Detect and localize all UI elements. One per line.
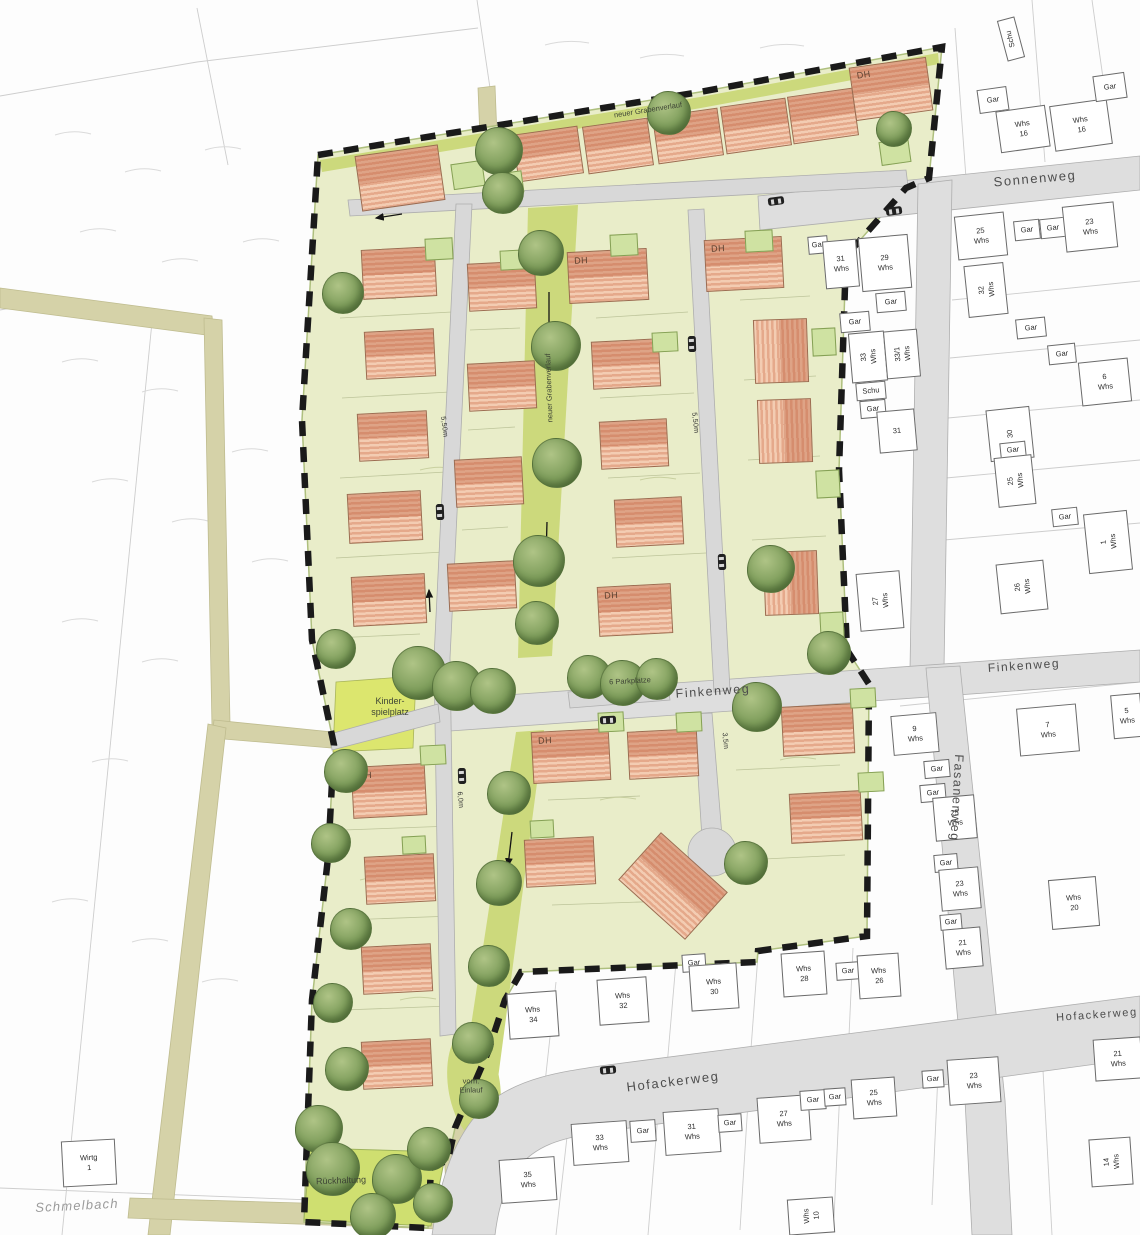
existing-building: 21Whs [1093, 1036, 1140, 1081]
tree [313, 983, 353, 1023]
existing-building: Gar [1047, 343, 1077, 366]
existing-building: Whs20 [1048, 876, 1100, 930]
building-label: Gar [1024, 322, 1037, 333]
building-label: Gar [939, 858, 952, 869]
existing-building: 5Whs [1110, 693, 1140, 739]
car-window [689, 339, 694, 342]
tree [475, 127, 523, 175]
building-label: 7Whs [1040, 720, 1057, 741]
existing-building: Whs16 [1049, 98, 1113, 152]
site-plan-map: DHDHDHDHDHDHSchuGarWhs16Whs16GarGar31Whs… [0, 0, 1140, 1235]
tree [807, 631, 851, 675]
building-label: Schu [1004, 29, 1018, 48]
building-label: 35Whs [520, 1170, 536, 1190]
garage-plot [675, 711, 702, 732]
house-type-label: DH [604, 590, 619, 601]
building-label: Gar [828, 1092, 841, 1103]
car [886, 206, 903, 216]
car-window [610, 717, 613, 722]
car-window [896, 208, 900, 213]
building-label: 23Whs [966, 1071, 982, 1091]
building-label: 26Whs [1012, 579, 1033, 596]
building-label: 30 [1005, 429, 1016, 438]
new-house [357, 410, 429, 462]
existing-building: Whs32 [596, 976, 649, 1025]
car-window [603, 718, 606, 723]
house-type-label: DH [856, 69, 871, 81]
building-label: Gar [1058, 511, 1071, 522]
building-label: 25Whs [866, 1088, 882, 1108]
building-label: Whs10 [801, 1208, 821, 1224]
building-label: Gar [1103, 81, 1117, 92]
building-label: Gar [944, 917, 957, 928]
building-label: 14Whs [1101, 1154, 1121, 1170]
building-label: Gar [986, 94, 1000, 105]
building-label: 29Whs [877, 253, 894, 274]
measurement-label: 5,50m [689, 412, 700, 434]
building-label: Gar [1006, 444, 1019, 455]
existing-building: Gar [1092, 72, 1127, 102]
existing-building: Wirtg1 [61, 1139, 117, 1188]
building-label: 21Whs [955, 938, 972, 959]
garage-plot [849, 687, 876, 708]
tree [311, 823, 351, 863]
tree [724, 841, 768, 885]
garage-plot [609, 233, 638, 256]
tree [325, 1047, 369, 1091]
car [458, 768, 467, 784]
building-label: 25Whs [973, 226, 990, 247]
tree [876, 111, 912, 147]
existing-building: Gar [921, 1069, 944, 1088]
new-house [361, 943, 433, 995]
existing-building: 35Whs [499, 1156, 558, 1204]
measurement-label: 6,0m [454, 791, 464, 808]
building-label: Whs28 [796, 964, 812, 984]
existing-building: 27Whs [856, 570, 905, 632]
building-label: Whs32 [615, 991, 631, 1011]
garage-plot [811, 327, 836, 356]
existing-building: 25Whs [993, 454, 1036, 508]
car-window [720, 564, 725, 567]
building-label: Gar [636, 1126, 649, 1137]
building-label: 31Whs [833, 254, 850, 275]
existing-building: Gar [923, 759, 950, 779]
car-window [460, 778, 465, 781]
map-items-layer: DHDHDHDHDHDHSchuGarWhs16Whs16GarGar31Whs… [0, 0, 1140, 1235]
street-name-label: Sonnenweg [993, 167, 1077, 190]
building-label: Gar [1020, 224, 1033, 235]
car-window [438, 514, 443, 517]
building-label: Whs20 [1066, 893, 1083, 914]
new-house [351, 573, 428, 627]
building-label: Gar [884, 297, 897, 308]
new-house [627, 728, 699, 780]
car-window [603, 1068, 606, 1073]
new-house: DH [531, 728, 612, 784]
building-label: 32Whs [976, 282, 997, 299]
new-house [454, 456, 524, 507]
car-window [610, 1067, 613, 1072]
new-house [347, 490, 424, 544]
street-name-label: Hofackerweg [626, 1068, 721, 1096]
existing-building: Whs26 [857, 953, 902, 1000]
building-label: Whs30 [706, 977, 722, 997]
new-house [781, 703, 856, 757]
existing-building: 23Whs [938, 866, 982, 911]
existing-building: 9Whs [890, 712, 939, 756]
existing-building: 23Whs [946, 1056, 1001, 1106]
existing-building: 33/1Whs [883, 329, 921, 380]
car [600, 716, 616, 725]
existing-building: Whs30 [688, 962, 739, 1011]
new-house [524, 836, 596, 888]
annotation-label: Rückhaltung [316, 1175, 366, 1188]
car-window [437, 507, 442, 510]
annotation-label: Kinder- spielplatz [371, 696, 409, 719]
car-window [719, 557, 724, 560]
tree [482, 172, 524, 214]
building-label: 5Whs [1119, 706, 1136, 727]
building-label: Whs16 [1072, 114, 1090, 135]
tree [452, 1022, 494, 1064]
new-house: DH [597, 583, 674, 637]
existing-building: 7Whs [1016, 703, 1080, 756]
building-label: Gar [806, 1095, 819, 1106]
building-label: 27Whs [776, 1109, 792, 1129]
garage-plot [530, 819, 555, 838]
house-type-label: DH [711, 243, 726, 254]
existing-building: 31 [876, 408, 918, 453]
existing-building: 25Whs [851, 1077, 898, 1120]
existing-building: Whs28 [781, 951, 828, 998]
existing-building: Gar [1013, 219, 1041, 242]
measurement-label: 3,5m [719, 732, 729, 749]
existing-building: 32Whs [963, 262, 1008, 318]
stream-name-label: Schmelbach [35, 1196, 119, 1217]
existing-building: 26Whs [996, 560, 1049, 615]
existing-building: 25Whs [954, 212, 1008, 261]
new-house [614, 496, 684, 547]
existing-building: Gar [1015, 316, 1047, 339]
annotation-label: vorh. Einlauf [460, 1077, 483, 1096]
tree [531, 321, 581, 371]
building-label: 6Whs [1097, 372, 1114, 393]
existing-building: 23Whs [1062, 201, 1119, 252]
car-window [690, 346, 695, 349]
building-label: Gar [926, 1074, 939, 1085]
tree [413, 1183, 453, 1223]
tree [306, 1142, 360, 1196]
garage-plot [424, 237, 453, 260]
tree [513, 535, 565, 587]
building-label: Gar [723, 1118, 736, 1129]
new-house [757, 398, 813, 464]
car-window [459, 771, 464, 774]
existing-building: 21Whs [942, 926, 983, 969]
building-label: 23Whs [952, 879, 969, 900]
measurement-label: 5,50m [437, 416, 448, 438]
tree [324, 749, 368, 793]
building-label: 27Whs [870, 593, 891, 610]
garage-plot [815, 469, 840, 498]
new-house [364, 328, 436, 380]
tree [316, 629, 356, 669]
tree [322, 272, 364, 314]
building-label: 33/1Whs [892, 346, 913, 363]
building-label: 31 [892, 426, 901, 436]
existing-building: Whs34 [506, 990, 559, 1039]
garage-plot [402, 835, 427, 854]
street-name-label: Finkenweg [987, 656, 1060, 676]
new-house [599, 418, 669, 469]
building-label: Schu [862, 385, 880, 396]
new-house [618, 832, 728, 940]
car-window [778, 198, 782, 203]
car [436, 504, 445, 520]
new-house [720, 98, 792, 155]
new-house [512, 126, 584, 183]
new-house [355, 144, 446, 211]
existing-building: Schu [997, 16, 1025, 61]
tree [487, 771, 531, 815]
existing-building: Whs10 [787, 1196, 835, 1235]
tree [468, 945, 510, 987]
building-label: 33Whs [592, 1133, 608, 1153]
existing-building: 31Whs [663, 1108, 722, 1156]
new-house [591, 338, 661, 389]
existing-building: 1Whs [1083, 510, 1133, 574]
existing-building: 33Whs [571, 1120, 630, 1166]
new-house [447, 560, 517, 611]
existing-building: 29Whs [858, 234, 913, 292]
existing-building: Whs16 [995, 105, 1050, 154]
building-label: Gar [1046, 222, 1059, 233]
building-label: Gar [1055, 348, 1068, 359]
existing-building: Gar [839, 311, 871, 334]
new-house [364, 853, 436, 905]
building-label: Gar [930, 764, 943, 775]
existing-building: Gar [629, 1119, 656, 1143]
building-label: Gar [848, 317, 861, 328]
garage-plot [651, 331, 678, 352]
existing-building: 31Whs [822, 239, 860, 290]
building-label: Whs34 [525, 1005, 541, 1025]
building-label: 1Whs [1098, 534, 1119, 551]
existing-building: 6Whs [1078, 358, 1132, 407]
new-house [753, 318, 809, 384]
building-label: 33Whs [858, 349, 879, 366]
existing-building: Gar [799, 1089, 826, 1111]
existing-building: Gar [823, 1087, 846, 1106]
building-label: 21Whs [1110, 1049, 1126, 1069]
building-label: 25Whs [1005, 473, 1026, 490]
house-type-label: DH [538, 735, 553, 746]
car [600, 1065, 617, 1074]
new-house: DH [567, 248, 650, 304]
tree [747, 545, 795, 593]
street-name-label: Hofackerweg [1056, 1006, 1139, 1025]
tree [515, 601, 559, 645]
building-label: Gar [841, 966, 854, 977]
new-house [789, 790, 864, 844]
car [768, 196, 785, 206]
tree [518, 230, 564, 276]
new-house [361, 1038, 433, 1090]
building-label: Whs16 [1014, 118, 1032, 139]
garage-plot [857, 771, 884, 792]
building-label: Wirtg1 [80, 1153, 98, 1173]
new-house [787, 88, 859, 145]
building-label: 23Whs [1082, 217, 1099, 238]
car [688, 336, 697, 352]
garage-plot [419, 744, 446, 765]
existing-building: 14Whs [1088, 1137, 1133, 1188]
new-house [467, 360, 537, 411]
house-type-label: DH [574, 255, 589, 266]
car-window [771, 199, 775, 204]
tree [330, 908, 372, 950]
tree [470, 668, 516, 714]
building-label: Whs26 [871, 966, 887, 986]
existing-building: Gar [717, 1113, 742, 1133]
car-window [889, 209, 893, 214]
existing-building: 33Whs [848, 331, 888, 384]
existing-building: Gar [1051, 507, 1079, 528]
building-label: 31Whs [684, 1122, 700, 1142]
building-label: 9Whs [907, 724, 924, 745]
car [718, 554, 727, 570]
tree [532, 438, 582, 488]
garage-plot [744, 229, 773, 252]
new-house [582, 118, 654, 175]
tree [350, 1193, 396, 1235]
existing-building: Gar [875, 291, 907, 314]
tree [476, 860, 522, 906]
tree [407, 1127, 451, 1171]
